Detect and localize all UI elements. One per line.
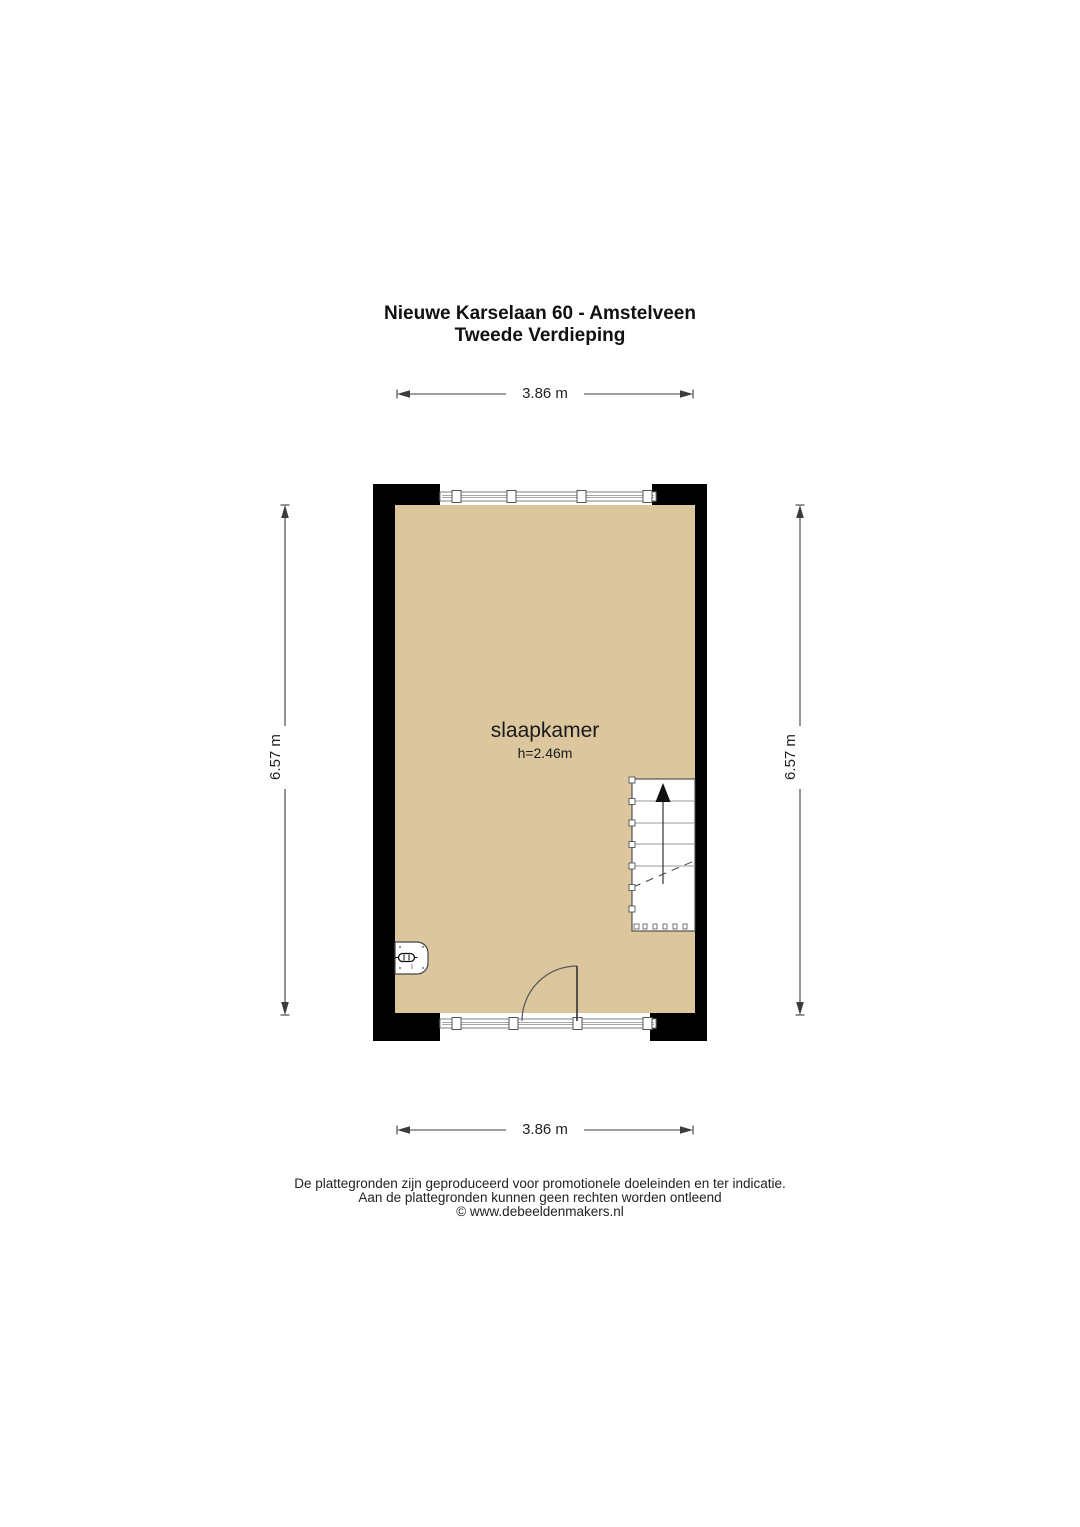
room-name-label: slaapkamer (395, 719, 695, 743)
floor-plan-page: Nieuwe Karselaan 60 - Amstelveen Tweede … (0, 0, 1080, 1527)
staircase (629, 777, 695, 931)
wall-bottom-left (373, 1013, 440, 1041)
wall-top-left (373, 484, 440, 505)
dimension-label-top: 3.86 m (395, 385, 695, 403)
window-bottom (440, 1018, 656, 1030)
wall-right (695, 484, 707, 1041)
faucet-icon (399, 954, 415, 962)
room-height-label: h=2.46m (395, 745, 695, 761)
dimension-label-right: 6.57 m (781, 717, 801, 797)
footer-disclaimer-line2: Aan de plattegronden kunnen geen rechten… (0, 1191, 1080, 1205)
floor-plan-svg (0, 0, 1080, 1527)
wall-bottom-right (650, 1013, 707, 1041)
footer-disclaimer-line1: De plattegronden zijn geproduceerd voor … (0, 1177, 1080, 1191)
footer-credit: © www.debeeldenmakers.nl (0, 1205, 1080, 1219)
dimension-label-left: 6.57 m (266, 717, 286, 797)
dimension-label-bottom: 3.86 m (395, 1121, 695, 1139)
wall-left (373, 484, 395, 1041)
sink (395, 942, 428, 974)
wall-top-right (652, 484, 707, 505)
window-top (440, 491, 656, 503)
